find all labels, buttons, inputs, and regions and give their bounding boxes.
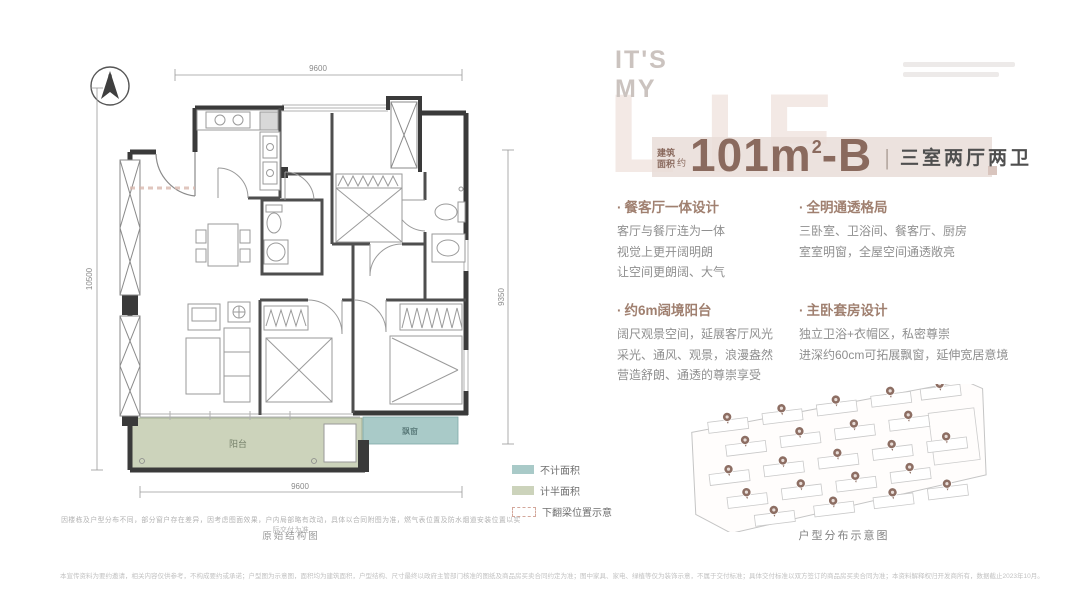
unit-title: 建筑 面积 约 101m2-B | 三室两厅两卫 xyxy=(657,126,1032,178)
brand-line2: MY xyxy=(615,75,668,104)
dim-bottom: 9600 xyxy=(291,482,309,491)
feature-list: ·餐客厅一体设计 客厅与餐厅连为一体 视觉上更开阔明朗 让空间更朗阔、大气 ·全… xyxy=(617,196,1037,386)
page: N 9600 10500 9350 9600 阳台 xyxy=(0,0,1080,608)
legend-item-half-counted: 计半面积 xyxy=(512,483,612,498)
legend-label: 不计面积 xyxy=(540,462,580,477)
bullet-icon: · xyxy=(617,303,622,318)
kitchen xyxy=(197,110,280,190)
area-approx: 约 xyxy=(677,156,686,169)
bathroom-2 xyxy=(432,187,465,262)
floor-plan: N 9600 10500 9350 9600 阳台 xyxy=(70,48,550,518)
balcony-label: 阳台 xyxy=(229,438,247,449)
area-label: 建筑 面积 约 xyxy=(657,148,686,178)
master-bedroom xyxy=(390,304,462,404)
legend-item-not-counted: 不计面积 xyxy=(512,462,612,477)
left-bay-windows xyxy=(120,160,140,416)
legend-swatch-sage xyxy=(512,486,534,495)
title-divider: | xyxy=(884,145,890,171)
legend-swatch-dashed xyxy=(512,507,536,517)
bedroom-3 xyxy=(264,306,332,402)
feature-bright-layout: ·全明通透格局 三卧室、卫浴间、餐客厅、厨房 室室明窗，全屋空间通透敞亮 xyxy=(799,196,1037,283)
unit-area-value: 101m2-B xyxy=(690,132,872,178)
bullet-icon: · xyxy=(799,303,804,318)
feature-balcony: ·约6m阔境阳台 阔尺观景空间，延展客厅风光 采光、通风、观景，浪漫盎然 营造舒… xyxy=(617,299,795,386)
dim-right: 9350 xyxy=(497,288,506,306)
footer-disclaimer: 本宣传资料为要约邀请，相关内容仅供参考，不构成要约或承诺；户型图为示意图，面积均… xyxy=(60,570,1040,580)
unit-suffix: -B xyxy=(822,129,873,181)
plan-legend: 不计面积 计半面积 下翻梁位置示意 xyxy=(512,462,612,525)
feature-dining-living: ·餐客厅一体设计 客厅与餐厅连为一体 视觉上更开阔明朗 让空间更朗阔、大气 xyxy=(617,196,795,283)
plan-structure-caption: 原始结构图 xyxy=(58,528,524,542)
area-label-top: 建筑 xyxy=(657,148,675,158)
legend-label: 计半面积 xyxy=(540,483,580,498)
legend-swatch-teal xyxy=(512,465,534,474)
faint-tagline xyxy=(903,62,1015,82)
north-label: N xyxy=(108,75,112,81)
square-sup: 2 xyxy=(812,137,822,157)
brand-line1: IT'S xyxy=(615,46,668,75)
legend-label: 下翻梁位置示意 xyxy=(542,504,612,519)
living-room xyxy=(186,302,250,402)
bedroom-2 xyxy=(336,174,402,242)
dim-top: 9600 xyxy=(309,64,327,73)
brand-slogan: IT'S MY xyxy=(615,46,668,104)
feature-master-suite: ·主卧套房设计 独立卫浴+衣帽区，私密尊崇 进深约60cm可拓展飘窗，延伸宽居意… xyxy=(799,299,1037,386)
dim-left: 10500 xyxy=(85,267,94,290)
bullet-icon: · xyxy=(799,200,804,215)
site-plan-caption: 户型分布示意图 xyxy=(678,527,1010,543)
dining-set xyxy=(196,224,250,266)
bullet-icon: · xyxy=(617,200,622,215)
legend-item-beam: 下翻梁位置示意 xyxy=(512,504,612,519)
bay-window-label: 飘窗 xyxy=(402,426,418,436)
unit-layout: 三室两厅两卫 xyxy=(900,143,1032,178)
area-label-bottom: 面积 xyxy=(657,159,675,169)
site-plan xyxy=(678,384,1010,532)
bathroom-1 xyxy=(264,205,288,264)
